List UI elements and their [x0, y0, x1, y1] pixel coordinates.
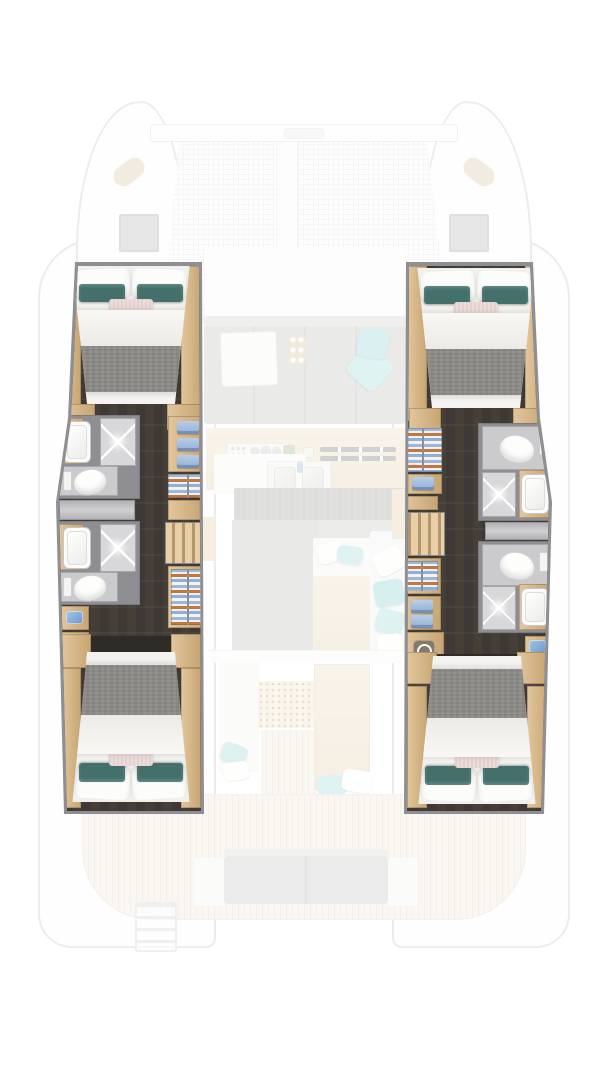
duvet: [70, 709, 192, 754]
hull-window: [485, 522, 549, 540]
side-cabinet: [61, 606, 89, 630]
starboard-hull-floor: [401, 256, 553, 816]
starboard-hull: [401, 256, 553, 816]
folded-towel: [177, 455, 199, 468]
swim-ladder: [135, 902, 177, 952]
blanket: [413, 349, 540, 397]
toilet-room: [58, 572, 118, 602]
wardrobe: [403, 558, 441, 594]
toilet: [71, 572, 110, 605]
hanging-clothes: [406, 561, 438, 591]
catamaran-floorplan: [0, 0, 608, 1080]
galley-vent: [320, 456, 396, 461]
cockpit-floor: [232, 520, 318, 658]
cupholder-tray-icon: [287, 334, 307, 366]
folded-towel: [412, 477, 434, 490]
toilet-tank: [63, 471, 72, 491]
shower: [100, 524, 136, 572]
toilet-tank: [539, 552, 548, 572]
bed-foot: [423, 656, 530, 669]
aft-side-table: [388, 858, 418, 906]
bed-forward-starboard: [415, 268, 537, 408]
bed-foot: [422, 395, 529, 408]
sink-basin: [302, 467, 324, 490]
island-cabinet: [313, 576, 371, 660]
door-threshold: [208, 650, 404, 662]
shower: [482, 586, 516, 630]
bathroom-aft-starboard: [479, 542, 553, 632]
folded-towel: [177, 438, 199, 451]
folded-towel: [177, 421, 199, 434]
saloon-sofa-back: [204, 316, 406, 326]
folded-towel: [411, 615, 433, 628]
bathroom-sink: [521, 474, 549, 514]
deck-hatch-port: [119, 214, 159, 252]
linen-shelf: [404, 474, 442, 494]
teal-throw-pillow: [355, 325, 391, 361]
duvet: [416, 712, 538, 756]
toilet-tank: [63, 577, 72, 597]
transom-bench: [224, 856, 388, 904]
blanket: [68, 664, 195, 715]
crossbeam-fitting: [284, 128, 324, 139]
cockpit-grate: [258, 681, 316, 728]
bed-aft-starboard: [416, 656, 538, 804]
toilet-room: [58, 466, 118, 496]
bathroom-sink: [521, 588, 549, 626]
shelf: [168, 500, 203, 520]
aft-side-table: [194, 858, 224, 906]
saloon-table: [220, 331, 278, 387]
bed-aft-port: [70, 652, 192, 802]
deck-hatch-starboard: [449, 214, 489, 252]
sink-basin: [274, 467, 296, 490]
bed-foot: [77, 392, 184, 404]
toilet-room: [482, 544, 550, 586]
bathroom-aft-port: [55, 522, 139, 604]
bed-foot: [77, 652, 184, 666]
folded-towel: [411, 600, 433, 613]
port-hull-floor: [55, 256, 207, 816]
teal-cushion: [483, 766, 529, 785]
port-hull: [55, 256, 207, 816]
blanket: [414, 668, 541, 718]
shelf: [404, 496, 438, 510]
hull-window: [59, 500, 135, 520]
cabinet-basin: [66, 611, 83, 624]
bed-forward-port: [70, 266, 192, 404]
teal-cushion: [425, 766, 471, 785]
teal-pillow: [336, 544, 364, 565]
shower: [482, 472, 516, 517]
shower: [100, 418, 136, 466]
hanger-closet: [404, 428, 442, 472]
hanging-clothes: [171, 569, 204, 625]
toilet: [496, 431, 538, 467]
blanket: [68, 346, 195, 393]
toilet: [71, 466, 110, 499]
toilet: [496, 548, 538, 584]
white-pillow: [222, 760, 250, 781]
headboard-shelf: [91, 636, 171, 652]
linen-closet: [403, 596, 441, 630]
galley-vent: [320, 447, 396, 452]
galley-mat: [234, 488, 406, 520]
faucet-icon: [297, 462, 303, 473]
bathroom-sink: [63, 527, 91, 569]
